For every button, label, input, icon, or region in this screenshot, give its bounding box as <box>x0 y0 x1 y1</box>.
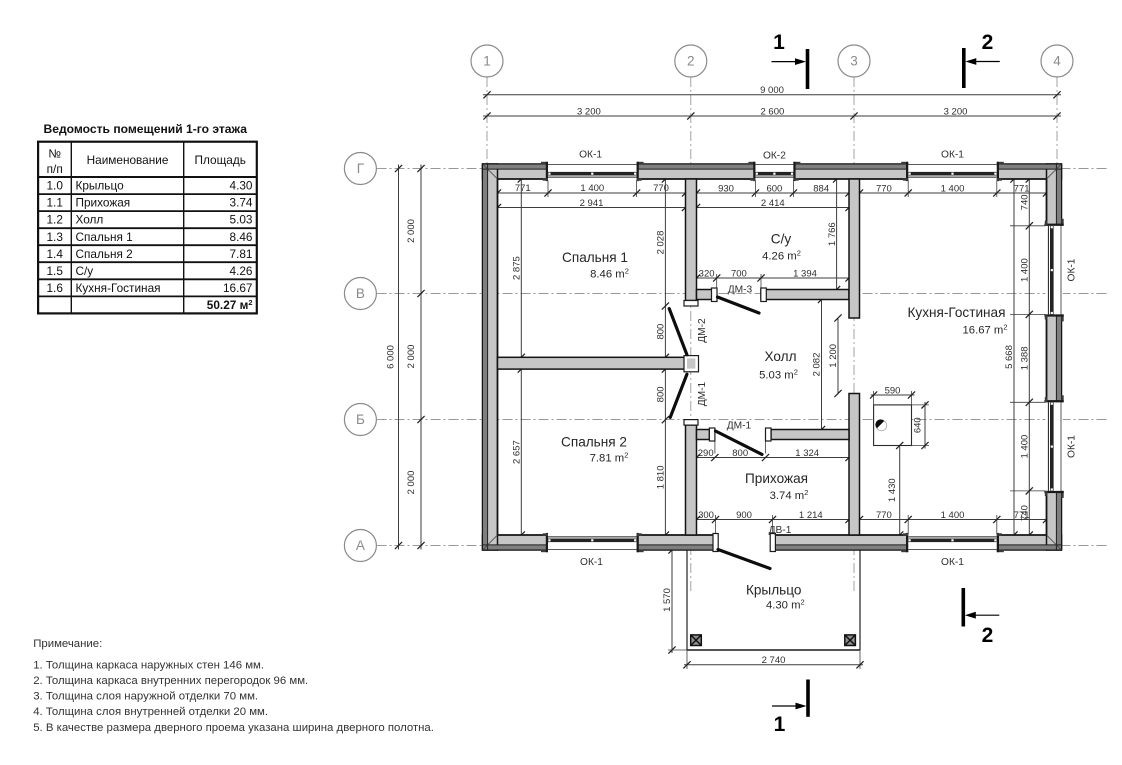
svg-text:5. В качестве размера дверного: 5. В качестве размера дверного проема ук… <box>33 722 434 734</box>
svg-text:2: 2 <box>982 624 994 647</box>
svg-text:2: 2 <box>982 31 994 54</box>
svg-text:Спальня 2: Спальня 2 <box>561 435 627 450</box>
svg-text:1: 1 <box>774 713 786 736</box>
svg-text:4.30 m2: 4.30 m2 <box>766 597 805 612</box>
svg-text:ОК-2: ОК-2 <box>763 151 786 162</box>
svg-text:2 941: 2 941 <box>580 198 604 209</box>
svg-text:1 766: 1 766 <box>827 222 838 246</box>
svg-text:930: 930 <box>718 183 734 194</box>
svg-text:ОК-1: ОК-1 <box>1067 435 1078 458</box>
svg-text:8.46 m2: 8.46 m2 <box>590 266 629 281</box>
svg-text:Наименование: Наименование <box>87 153 169 167</box>
svg-text:2 657: 2 657 <box>512 440 523 464</box>
svg-text:5.03 m2: 5.03 m2 <box>759 367 798 382</box>
svg-text:А: А <box>356 538 365 553</box>
svg-text:1. Толщина каркаса наружных ст: 1. Толщина каркаса наружных стен 146 мм. <box>33 659 264 671</box>
svg-text:1 400: 1 400 <box>1020 258 1031 282</box>
svg-text:ОК-1: ОК-1 <box>580 557 603 568</box>
svg-text:Б: Б <box>356 412 365 427</box>
svg-text:3: 3 <box>850 54 858 69</box>
svg-text:ДМ-3: ДМ-3 <box>728 285 753 296</box>
svg-text:8.46: 8.46 <box>230 230 253 244</box>
svg-text:320: 320 <box>699 268 715 279</box>
svg-text:2. Толщина каркаса внутренних: 2. Толщина каркаса внутренних перегородо… <box>33 675 308 687</box>
svg-text:770: 770 <box>876 510 892 521</box>
svg-text:4: 4 <box>1053 54 1061 69</box>
svg-text:2 028: 2 028 <box>656 231 667 255</box>
svg-text:Г: Г <box>357 161 365 176</box>
svg-text:1.6: 1.6 <box>46 281 63 295</box>
svg-text:590: 590 <box>885 385 901 396</box>
svg-text:771: 771 <box>515 183 531 194</box>
svg-text:1 400: 1 400 <box>941 510 965 521</box>
svg-text:Кухня-Гостиная: Кухня-Гостиная <box>76 281 161 295</box>
svg-text:2 600: 2 600 <box>761 106 785 117</box>
svg-text:Спальня 2: Спальня 2 <box>76 247 133 261</box>
svg-text:Примечание:: Примечание: <box>33 638 102 650</box>
svg-text:700: 700 <box>731 268 747 279</box>
svg-text:770: 770 <box>653 183 669 194</box>
svg-text:1: 1 <box>483 54 491 69</box>
svg-text:800: 800 <box>732 448 748 459</box>
svg-text:Крыльцо: Крыльцо <box>746 583 801 598</box>
svg-text:Кухня-Гостиная: Кухня-Гостиная <box>908 305 1006 320</box>
svg-text:1 400: 1 400 <box>1020 435 1031 459</box>
svg-text:ДМ-1: ДМ-1 <box>697 381 708 406</box>
svg-text:2 740: 2 740 <box>762 655 786 666</box>
svg-text:ОК-1: ОК-1 <box>1067 258 1078 281</box>
svg-text:2 414: 2 414 <box>761 198 785 209</box>
svg-text:1 324: 1 324 <box>795 448 819 459</box>
svg-text:7.81: 7.81 <box>230 247 253 261</box>
svg-text:740: 740 <box>1020 194 1031 210</box>
svg-text:ДВ-1: ДВ-1 <box>769 525 792 536</box>
svg-text:3.74 m2: 3.74 m2 <box>770 488 809 503</box>
svg-text:ОК-1: ОК-1 <box>941 557 964 568</box>
svg-text:7.81 m2: 7.81 m2 <box>590 450 629 465</box>
svg-text:4.30: 4.30 <box>230 179 253 193</box>
svg-text:1.1: 1.1 <box>46 196 62 210</box>
svg-text:ДМ-2: ДМ-2 <box>697 318 708 343</box>
svg-text:5 668: 5 668 <box>1004 345 1015 369</box>
svg-text:4. Толщина слоя внутренней отд: 4. Толщина слоя внутренней отделки 20 мм… <box>33 706 268 718</box>
svg-text:884: 884 <box>813 183 829 194</box>
svg-text:1 394: 1 394 <box>793 268 817 279</box>
svg-text:Прихожая: Прихожая <box>76 196 131 210</box>
svg-text:5.03: 5.03 <box>230 213 253 227</box>
svg-text:740: 740 <box>1020 505 1031 521</box>
svg-text:1: 1 <box>773 31 785 54</box>
svg-text:Прихожая: Прихожая <box>745 471 808 486</box>
svg-text:6 000: 6 000 <box>386 345 397 369</box>
svg-text:ОК-1: ОК-1 <box>579 150 602 161</box>
svg-text:1 200: 1 200 <box>828 344 839 368</box>
svg-text:50.27 м2: 50.27 м2 <box>207 298 253 313</box>
svg-text:4.26 m2: 4.26 m2 <box>762 248 801 263</box>
svg-text:1 810: 1 810 <box>656 466 667 490</box>
svg-text:771: 771 <box>1014 183 1030 194</box>
svg-text:3 200: 3 200 <box>577 106 601 117</box>
svg-text:п/п: п/п <box>47 162 63 176</box>
svg-text:3. Толщина слоя наружной отдел: 3. Толщина слоя наружной отделки 70 мм. <box>33 691 258 703</box>
svg-text:1 388: 1 388 <box>1020 347 1031 371</box>
svg-text:2: 2 <box>687 54 695 69</box>
svg-text:С/у: С/у <box>76 264 94 278</box>
svg-text:1 570: 1 570 <box>662 588 673 612</box>
svg-text:1.2: 1.2 <box>46 213 62 227</box>
svg-text:ДМ-1: ДМ-1 <box>727 421 752 432</box>
svg-text:1.3: 1.3 <box>46 230 63 244</box>
svg-text:1 400: 1 400 <box>941 183 965 194</box>
svg-text:2 000: 2 000 <box>406 345 417 369</box>
svg-text:1 430: 1 430 <box>887 478 898 502</box>
svg-text:1 400: 1 400 <box>580 183 604 194</box>
svg-text:800: 800 <box>656 324 667 340</box>
svg-text:2 000: 2 000 <box>406 471 417 495</box>
svg-text:1.4: 1.4 <box>46 247 63 261</box>
svg-text:1.5: 1.5 <box>46 264 63 278</box>
svg-text:2 082: 2 082 <box>812 353 823 377</box>
svg-text:16.67: 16.67 <box>223 281 253 295</box>
svg-text:2 875: 2 875 <box>512 256 523 280</box>
svg-text:1.0: 1.0 <box>46 179 63 193</box>
svg-text:Спальня 1: Спальня 1 <box>76 230 133 244</box>
svg-text:Спальня 1: Спальня 1 <box>562 250 628 265</box>
svg-text:ОК-1: ОК-1 <box>941 150 964 161</box>
svg-text:Холл: Холл <box>76 213 104 227</box>
svg-text:Крыльцо: Крыльцо <box>76 179 125 193</box>
svg-text:16.67 m2: 16.67 m2 <box>963 322 1008 337</box>
svg-text:№: № <box>48 147 61 161</box>
svg-text:900: 900 <box>736 510 752 521</box>
svg-text:4.26: 4.26 <box>230 264 253 278</box>
svg-text:3.74: 3.74 <box>230 196 253 210</box>
svg-text:770: 770 <box>876 183 892 194</box>
svg-text:В: В <box>356 286 365 301</box>
svg-text:290: 290 <box>698 448 714 459</box>
svg-text:1 214: 1 214 <box>799 510 823 521</box>
svg-text:С/у: С/у <box>771 232 792 247</box>
svg-text:2 000: 2 000 <box>406 219 417 243</box>
svg-text:Площадь: Площадь <box>195 153 246 167</box>
svg-text:3 200: 3 200 <box>944 106 968 117</box>
svg-text:600: 600 <box>766 183 782 194</box>
svg-text:640: 640 <box>913 417 924 433</box>
svg-text:800: 800 <box>656 386 667 402</box>
svg-text:Холл: Холл <box>764 349 796 364</box>
svg-text:9 000: 9 000 <box>760 85 784 96</box>
svg-text:300: 300 <box>698 510 714 521</box>
svg-text:Ведомость помещений 1-го этажа: Ведомость помещений 1-го этажа <box>44 122 248 136</box>
